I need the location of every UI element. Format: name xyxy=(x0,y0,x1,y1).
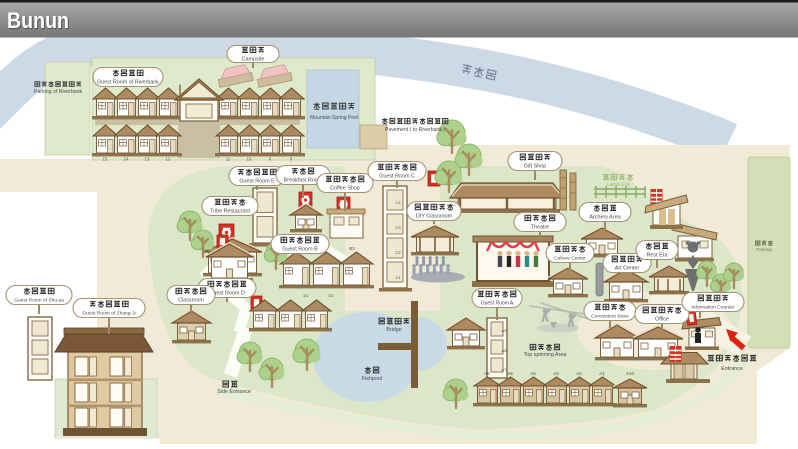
svg-text:A9: A9 xyxy=(502,328,508,333)
svg-text:Pavement ( to Riverbank ): Pavement ( to Riverbank ) xyxy=(385,127,446,133)
svg-text:Culture Center: Culture Center xyxy=(554,256,586,262)
svg-text:D2: D2 xyxy=(328,293,334,298)
svg-text:A10: A10 xyxy=(626,371,635,376)
svg-text:D1: D1 xyxy=(303,293,309,298)
svg-text:Guest Room of Shu-ya: Guest Room of Shu-ya xyxy=(14,298,64,304)
svg-text:A1: A1 xyxy=(599,371,605,376)
svg-text:A4: A4 xyxy=(530,371,536,376)
svg-text:Guest Room E: Guest Room E xyxy=(239,179,275,185)
svg-text:Bridge: Bridge xyxy=(386,327,402,333)
svg-text:C1: C1 xyxy=(395,275,401,280)
svg-text:Theatre: Theatre xyxy=(531,225,550,231)
svg-text:Lamb Era: Lamb Era xyxy=(606,182,629,188)
svg-text:Convenient Store: Convenient Store xyxy=(591,314,629,320)
svg-text:Office: Office xyxy=(655,317,669,323)
svg-text:B3: B3 xyxy=(349,246,355,251)
svg-text:Archery Area: Archery Area xyxy=(589,215,620,221)
svg-text:13: 13 xyxy=(145,157,150,162)
svg-text:Guest Room A: Guest Room A xyxy=(481,301,514,307)
svg-text:Art Center: Art Center xyxy=(615,266,640,272)
svg-text:14: 14 xyxy=(124,157,129,162)
svg-text:C3: C3 xyxy=(395,225,401,230)
svg-text:A2: A2 xyxy=(576,371,582,376)
svg-text:Parking of Riverbank: Parking of Riverbank xyxy=(34,89,83,95)
svg-text:C4: C4 xyxy=(395,200,401,205)
svg-text:A3: A3 xyxy=(553,371,559,376)
svg-text:Tribe Restaurant: Tribe Restaurant xyxy=(210,209,250,215)
svg-text:Guest Room C: Guest Room C xyxy=(379,174,415,180)
svg-text:12: 12 xyxy=(166,157,171,162)
svg-text:Classroom: Classroom xyxy=(178,298,204,304)
svg-text:Gift Shop: Gift Shop xyxy=(524,164,546,170)
svg-text:Campsite: Campsite xyxy=(242,57,265,63)
svg-text:10: 10 xyxy=(247,157,252,162)
svg-text:Fishpool: Fishpool xyxy=(362,376,382,382)
svg-text:Bunun: Bunun xyxy=(7,8,69,33)
svg-text:Side Entrance: Side Entrance xyxy=(217,389,251,395)
svg-text:A8: A8 xyxy=(502,348,508,353)
svg-text:Coffee Shop: Coffee Shop xyxy=(330,186,360,192)
svg-text:Parking: Parking xyxy=(756,247,772,252)
svg-text:Information Counter: Information Counter xyxy=(691,305,735,311)
svg-text:Guest Room of Zhang-Ji: Guest Room of Zhang-Ji xyxy=(82,311,135,317)
svg-text:Guest Room of Riverbank: Guest Room of Riverbank xyxy=(97,80,159,86)
svg-text:Mountain Spring Pool: Mountain Spring Pool xyxy=(310,115,358,121)
svg-text:C2: C2 xyxy=(395,250,401,255)
svg-text:Guest Room B: Guest Room B xyxy=(282,247,318,253)
svg-text:A5: A5 xyxy=(507,371,513,376)
svg-text:15: 15 xyxy=(103,157,108,162)
svg-text:DIY Classroom: DIY Classroom xyxy=(416,214,453,220)
svg-text:A6: A6 xyxy=(484,371,490,376)
svg-text:Entrance: Entrance xyxy=(721,366,743,372)
svg-text:11: 11 xyxy=(226,157,231,162)
svg-text:Top spinning Area: Top spinning Area xyxy=(524,352,567,358)
svg-text:Rest Era: Rest Era xyxy=(647,253,668,259)
